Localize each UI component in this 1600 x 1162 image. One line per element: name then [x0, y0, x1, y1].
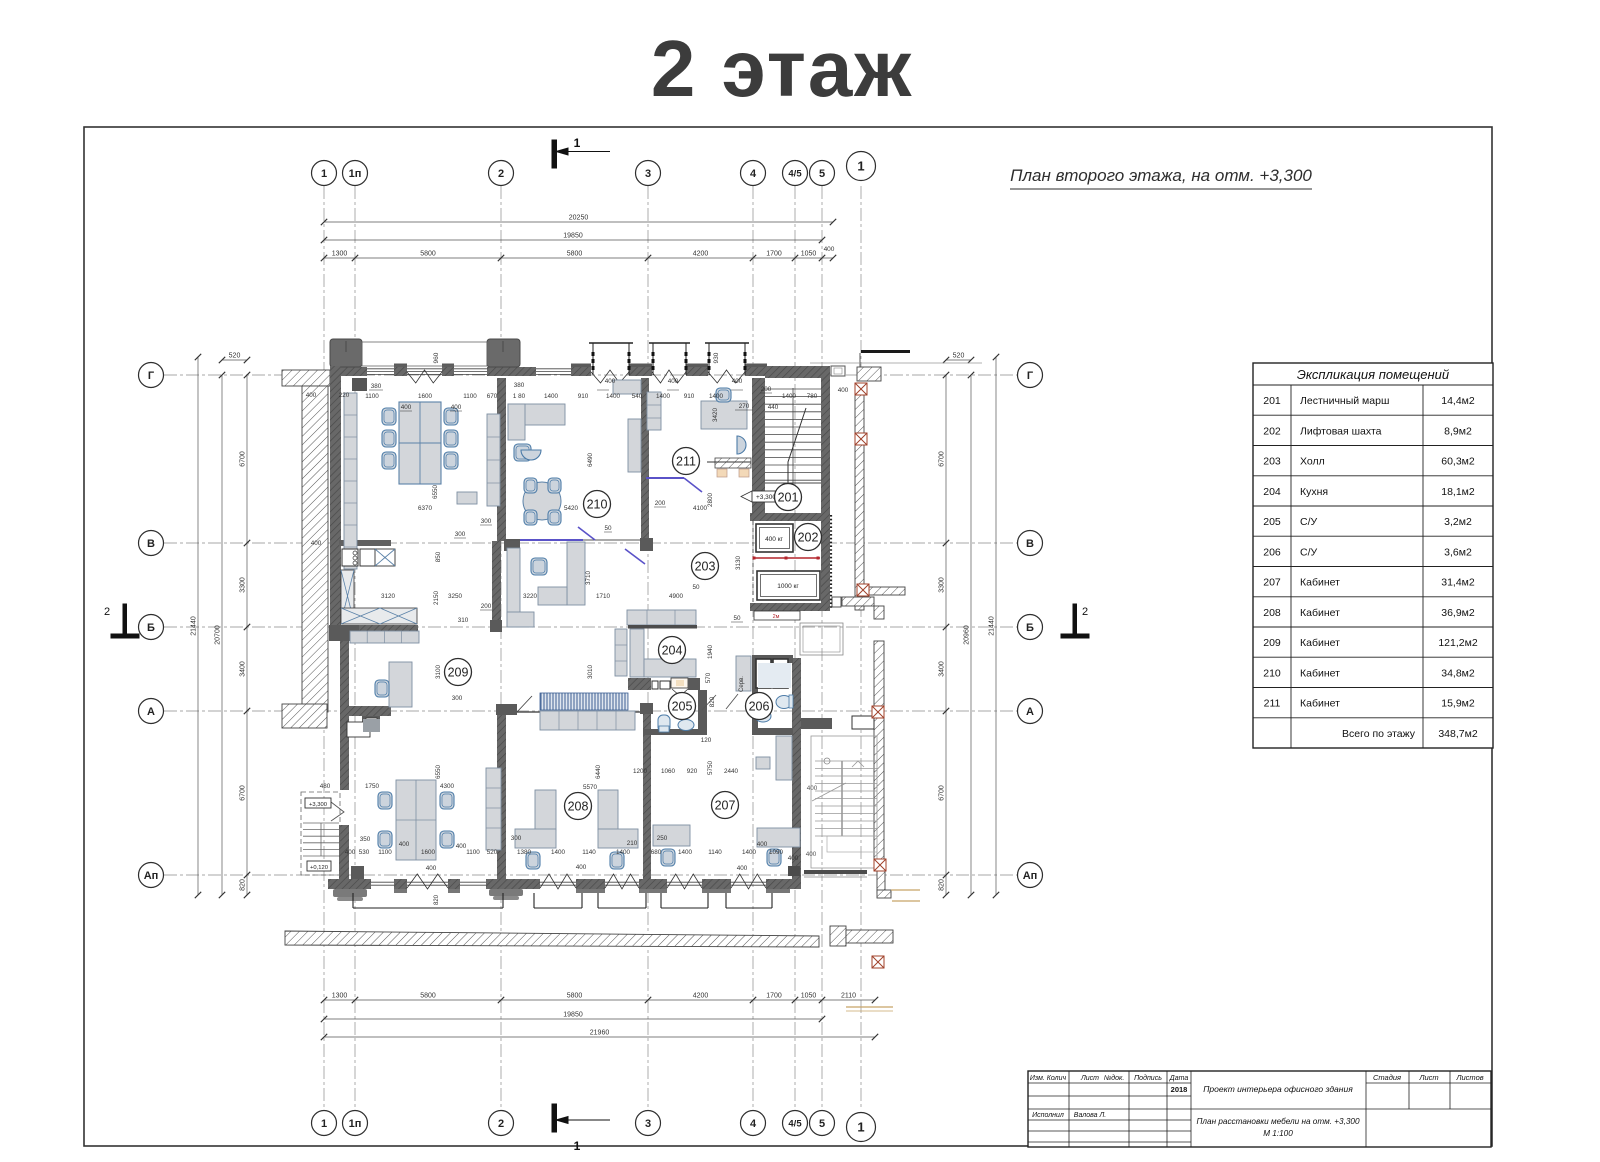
svg-text:1710: 1710: [596, 593, 611, 600]
svg-text:5800: 5800: [420, 993, 436, 1000]
svg-text:Дата: Дата: [1169, 1075, 1189, 1082]
svg-text:Кабинет: Кабинет: [1300, 667, 1340, 679]
svg-text:М 1:100: М 1:100: [1263, 1129, 1293, 1138]
svg-text:203: 203: [695, 560, 716, 574]
svg-text:3400: 3400: [240, 661, 247, 677]
svg-text:6550: 6550: [435, 765, 442, 780]
svg-text:400: 400: [311, 540, 322, 547]
svg-text:207: 207: [1263, 577, 1281, 589]
svg-text:21440: 21440: [989, 616, 996, 636]
svg-text:1140: 1140: [708, 849, 722, 856]
svg-text:400: 400: [451, 404, 462, 411]
svg-text:400: 400: [824, 246, 835, 253]
svg-text:С/У: С/У: [1300, 516, 1318, 528]
svg-text:Б: Б: [147, 622, 155, 634]
svg-text:План второго этажа, на отм. +3: План второго этажа, на отм. +3,300: [1010, 166, 1312, 185]
svg-text:Лист: Лист: [1080, 1075, 1099, 1082]
svg-text:210: 210: [587, 498, 608, 512]
svg-text:1400: 1400: [782, 393, 797, 400]
svg-text:3: 3: [645, 1118, 651, 1130]
svg-text:400: 400: [345, 849, 356, 856]
svg-text:5800: 5800: [420, 251, 436, 258]
svg-text:380: 380: [371, 383, 382, 390]
svg-text:310: 310: [458, 617, 469, 624]
svg-text:6550: 6550: [432, 485, 439, 500]
svg-text:1п: 1п: [349, 1118, 362, 1130]
svg-text:В: В: [147, 538, 155, 550]
svg-text:1: 1: [574, 1139, 581, 1153]
svg-text:3: 3: [645, 168, 651, 180]
svg-text:530: 530: [359, 849, 370, 856]
svg-text:Б: Б: [1026, 622, 1034, 634]
svg-text:5420: 5420: [564, 505, 579, 512]
svg-text:18,1м2: 18,1м2: [1441, 486, 1475, 498]
svg-text:3,2м2: 3,2м2: [1444, 516, 1472, 528]
svg-text:6490: 6490: [587, 453, 594, 468]
svg-text:2: 2: [498, 1118, 504, 1130]
svg-text:1100: 1100: [365, 393, 379, 400]
svg-text:400: 400: [838, 387, 849, 394]
svg-text:120: 120: [701, 737, 712, 744]
svg-text:Холл: Холл: [1300, 456, 1325, 468]
svg-text:Г: Г: [148, 370, 155, 382]
svg-text:В: В: [1026, 538, 1034, 550]
svg-text:1400: 1400: [544, 393, 559, 400]
svg-text:2018: 2018: [1171, 1085, 1188, 1094]
svg-text:480: 480: [320, 783, 331, 790]
svg-text:15,9м2: 15,9м2: [1441, 698, 1475, 710]
svg-text:204: 204: [662, 644, 683, 658]
svg-text:400: 400: [807, 785, 818, 792]
svg-text:14,4м2: 14,4м2: [1441, 395, 1475, 407]
svg-text:680: 680: [651, 849, 662, 856]
svg-text:1700: 1700: [766, 993, 782, 1000]
svg-text:440: 440: [768, 404, 779, 411]
svg-text:210: 210: [1263, 667, 1281, 679]
svg-text:300: 300: [452, 695, 463, 702]
svg-text:930: 930: [713, 352, 720, 363]
svg-text:270: 270: [739, 403, 750, 410]
svg-text:209: 209: [448, 666, 469, 680]
svg-text:4300: 4300: [440, 783, 455, 790]
svg-text:211: 211: [676, 455, 696, 469]
svg-text:205: 205: [1263, 516, 1281, 528]
svg-text:20700: 20700: [215, 625, 222, 645]
svg-text:209: 209: [1263, 637, 1281, 649]
svg-text:1400: 1400: [742, 849, 757, 856]
svg-text:400: 400: [737, 865, 748, 872]
svg-text:820: 820: [939, 879, 946, 891]
svg-text:400: 400: [576, 864, 587, 871]
svg-text:1940: 1940: [707, 645, 714, 660]
svg-text:3,6м2: 3,6м2: [1444, 546, 1472, 558]
svg-text:300: 300: [481, 518, 492, 525]
svg-text:201: 201: [1263, 395, 1281, 407]
svg-text:1100: 1100: [466, 849, 480, 856]
svg-text:1380: 1380: [517, 849, 532, 856]
svg-text:Лифтовая шахта: Лифтовая шахта: [1300, 425, 1382, 437]
svg-text:203: 203: [1263, 456, 1281, 468]
svg-text:3130: 3130: [735, 556, 742, 571]
svg-text:19850: 19850: [563, 233, 583, 240]
svg-text:20960: 20960: [964, 625, 971, 645]
svg-text:3300: 3300: [939, 577, 946, 593]
svg-text:3010: 3010: [587, 665, 594, 680]
svg-text:208: 208: [568, 800, 589, 814]
svg-text:4: 4: [750, 168, 757, 180]
svg-text:6700: 6700: [240, 785, 247, 801]
svg-text:34,8м2: 34,8м2: [1441, 667, 1475, 679]
svg-text:+3,300: +3,300: [309, 802, 327, 808]
svg-text:2: 2: [104, 606, 110, 618]
svg-text:1140: 1140: [582, 849, 596, 856]
svg-text:211: 211: [1264, 698, 1281, 710]
svg-text:400: 400: [401, 404, 412, 411]
svg-text:6700: 6700: [939, 451, 946, 467]
svg-text:20250: 20250: [569, 215, 589, 222]
svg-text:Исполнил: Исполнил: [1032, 1112, 1064, 1119]
svg-text:202: 202: [1263, 425, 1281, 437]
svg-text:3120: 3120: [381, 593, 396, 600]
svg-text:Г: Г: [1027, 370, 1034, 382]
svg-text:1300: 1300: [332, 251, 348, 258]
svg-text:2440: 2440: [724, 768, 739, 775]
svg-text:910: 910: [578, 393, 589, 400]
svg-text:Подпись: Подпись: [1134, 1074, 1162, 1082]
svg-text:Экспликация помещений: Экспликация помещений: [1297, 367, 1449, 382]
svg-text:4/5: 4/5: [788, 1118, 802, 1129]
svg-text:С/У: С/У: [1300, 546, 1318, 558]
svg-text:31,4м2: 31,4м2: [1441, 577, 1475, 589]
svg-text:520: 520: [953, 353, 965, 360]
svg-text:400: 400: [788, 855, 799, 862]
svg-text:520: 520: [229, 353, 241, 360]
svg-text:1400: 1400: [606, 393, 621, 400]
svg-text:400: 400: [732, 378, 743, 385]
svg-text:570: 570: [705, 672, 712, 683]
svg-text:204: 204: [1263, 486, 1281, 498]
svg-text:6700: 6700: [939, 785, 946, 801]
svg-text:4100: 4100: [693, 505, 708, 512]
svg-text:2150: 2150: [433, 591, 440, 606]
svg-text:4/5: 4/5: [788, 168, 802, 179]
svg-text:350: 350: [360, 836, 371, 843]
svg-text:1750: 1750: [365, 783, 380, 790]
svg-text:5800: 5800: [567, 251, 583, 258]
svg-text:2м: 2м: [773, 614, 780, 620]
svg-text:Кабинет: Кабинет: [1300, 698, 1340, 710]
svg-text:208: 208: [1263, 607, 1281, 619]
svg-text:1400: 1400: [678, 849, 693, 856]
svg-text:400: 400: [806, 851, 817, 858]
svg-text:3300: 3300: [240, 577, 247, 593]
svg-text:400: 400: [605, 378, 616, 385]
svg-text:820: 820: [240, 879, 247, 891]
svg-text:202: 202: [798, 531, 819, 545]
svg-text:60,3м2: 60,3м2: [1441, 456, 1475, 468]
svg-text:200: 200: [481, 603, 492, 610]
svg-text:207: 207: [715, 799, 736, 813]
svg-text:2800: 2800: [707, 493, 714, 508]
svg-text:400: 400: [426, 865, 437, 872]
svg-text:Кабинет: Кабинет: [1300, 607, 1340, 619]
svg-text:Ап: Ап: [1023, 870, 1038, 882]
svg-text:А: А: [1026, 706, 1034, 718]
svg-text:4200: 4200: [693, 993, 709, 1000]
svg-text:Проект интерьера офисного зда: Проект интерьера офисного здания: [1203, 1084, 1353, 1094]
svg-text:3100: 3100: [435, 665, 442, 680]
svg-text:Кабинет: Кабинет: [1300, 637, 1340, 649]
svg-text:6440: 6440: [595, 765, 602, 780]
svg-text:План расстановки мебели на отм: План расстановки мебели на отм. +3,300: [1196, 1117, 1359, 1126]
svg-text:21960: 21960: [590, 1030, 610, 1037]
svg-text:540: 540: [632, 393, 643, 400]
svg-text:400: 400: [399, 841, 410, 848]
svg-text:3710: 3710: [585, 571, 592, 586]
svg-text:1400: 1400: [616, 849, 631, 856]
svg-text:380: 380: [514, 382, 525, 389]
svg-text:1п: 1п: [349, 168, 362, 180]
svg-text:960: 960: [433, 352, 440, 363]
svg-text:Стадия: Стадия: [1373, 1073, 1401, 1082]
svg-text:Лестничный марш: Лестничный марш: [1300, 395, 1389, 407]
svg-text:850: 850: [435, 551, 442, 562]
svg-text:206: 206: [749, 700, 770, 714]
svg-text:1050: 1050: [801, 251, 817, 258]
svg-text:400: 400: [668, 378, 679, 385]
svg-text:50: 50: [692, 584, 700, 591]
svg-text:121,2м2: 121,2м2: [1438, 637, 1477, 649]
svg-text:50: 50: [733, 615, 741, 622]
svg-text:6700: 6700: [240, 451, 247, 467]
svg-text:920: 920: [687, 768, 698, 775]
svg-text:1000 кг: 1000 кг: [777, 583, 799, 590]
svg-text:1100: 1100: [463, 393, 477, 400]
svg-text:5800: 5800: [567, 993, 583, 1000]
svg-text:300: 300: [455, 531, 466, 538]
svg-text:Лист: Лист: [1418, 1073, 1438, 1082]
svg-text:№док.: №док.: [1104, 1074, 1125, 1082]
svg-text:Серв.: Серв.: [739, 676, 745, 692]
svg-text:3250: 3250: [448, 593, 463, 600]
svg-text:3420: 3420: [712, 408, 719, 423]
svg-text:2: 2: [498, 168, 504, 180]
svg-text:4200: 4200: [693, 251, 709, 258]
svg-text:206: 206: [1263, 546, 1281, 558]
svg-text:2 этаж: 2 этаж: [651, 24, 913, 113]
svg-text:1: 1: [321, 168, 327, 180]
svg-text:Всего по этажу: Всего по этажу: [1342, 728, 1416, 740]
svg-text:5: 5: [819, 1118, 825, 1130]
svg-text:4: 4: [750, 1118, 757, 1130]
svg-text:3400: 3400: [939, 661, 946, 677]
svg-text:400: 400: [456, 843, 467, 850]
svg-text:820: 820: [709, 696, 716, 707]
svg-text:200: 200: [655, 500, 666, 507]
svg-text:19850: 19850: [563, 1012, 583, 1019]
svg-text:220: 220: [339, 392, 350, 399]
svg-text:1400: 1400: [656, 393, 671, 400]
svg-text:Кухня: Кухня: [1300, 486, 1328, 498]
svg-text:300: 300: [511, 835, 522, 842]
svg-text:1100: 1100: [378, 849, 392, 856]
svg-text:1400: 1400: [551, 849, 566, 856]
svg-text:+3,300: +3,300: [756, 494, 776, 501]
svg-text:Листов: Листов: [1455, 1073, 1483, 1082]
svg-text:Изм. Колич: Изм. Колич: [1030, 1075, 1067, 1082]
svg-text:1090: 1090: [769, 849, 784, 856]
svg-text:201: 201: [778, 491, 799, 505]
svg-text:36,9м2: 36,9м2: [1441, 607, 1475, 619]
svg-text:50: 50: [604, 525, 612, 532]
svg-text:1: 1: [857, 159, 864, 174]
svg-text:1050: 1050: [801, 993, 817, 1000]
svg-text:1060: 1060: [661, 768, 676, 775]
svg-text:2: 2: [1082, 606, 1088, 618]
svg-text:21440: 21440: [191, 616, 198, 636]
svg-text:Кабинет: Кабинет: [1300, 577, 1340, 589]
svg-text:8,9м2: 8,9м2: [1444, 425, 1472, 437]
svg-text:+0,120: +0,120: [310, 865, 328, 871]
svg-text:520: 520: [487, 849, 498, 856]
svg-text:205: 205: [672, 700, 693, 714]
svg-text:1200: 1200: [633, 768, 648, 775]
svg-text:348,7м2: 348,7м2: [1438, 728, 1477, 740]
svg-text:5750: 5750: [707, 761, 714, 776]
svg-text:1400: 1400: [709, 393, 724, 400]
svg-text:400: 400: [306, 392, 317, 399]
svg-text:5570: 5570: [583, 784, 598, 791]
svg-text:820: 820: [434, 894, 440, 905]
svg-text:1: 1: [321, 1118, 327, 1130]
svg-text:210: 210: [627, 840, 638, 847]
svg-text:3220: 3220: [523, 593, 538, 600]
svg-text:1: 1: [574, 136, 581, 150]
svg-text:Ап: Ап: [144, 870, 159, 882]
svg-text:1: 1: [857, 1120, 864, 1135]
svg-text:250: 250: [657, 835, 668, 842]
svg-text:400: 400: [757, 841, 768, 848]
svg-text:2110: 2110: [841, 993, 856, 1000]
svg-text:А: А: [147, 706, 155, 718]
svg-text:670: 670: [487, 393, 498, 400]
svg-text:6370: 6370: [418, 505, 433, 512]
svg-text:4900: 4900: [669, 593, 684, 600]
svg-text:1300: 1300: [332, 993, 348, 1000]
svg-text:400 кг: 400 кг: [765, 536, 783, 543]
svg-text:1600: 1600: [418, 393, 433, 400]
svg-text:Валова Л.: Валова Л.: [1074, 1112, 1106, 1119]
svg-text:780: 780: [807, 393, 818, 400]
svg-text:910: 910: [684, 393, 695, 400]
svg-text:1600: 1600: [421, 849, 436, 856]
svg-text:1700: 1700: [766, 251, 782, 258]
svg-text:200: 200: [761, 386, 772, 393]
svg-text:5: 5: [819, 168, 825, 180]
svg-text:1 80: 1 80: [513, 393, 526, 400]
